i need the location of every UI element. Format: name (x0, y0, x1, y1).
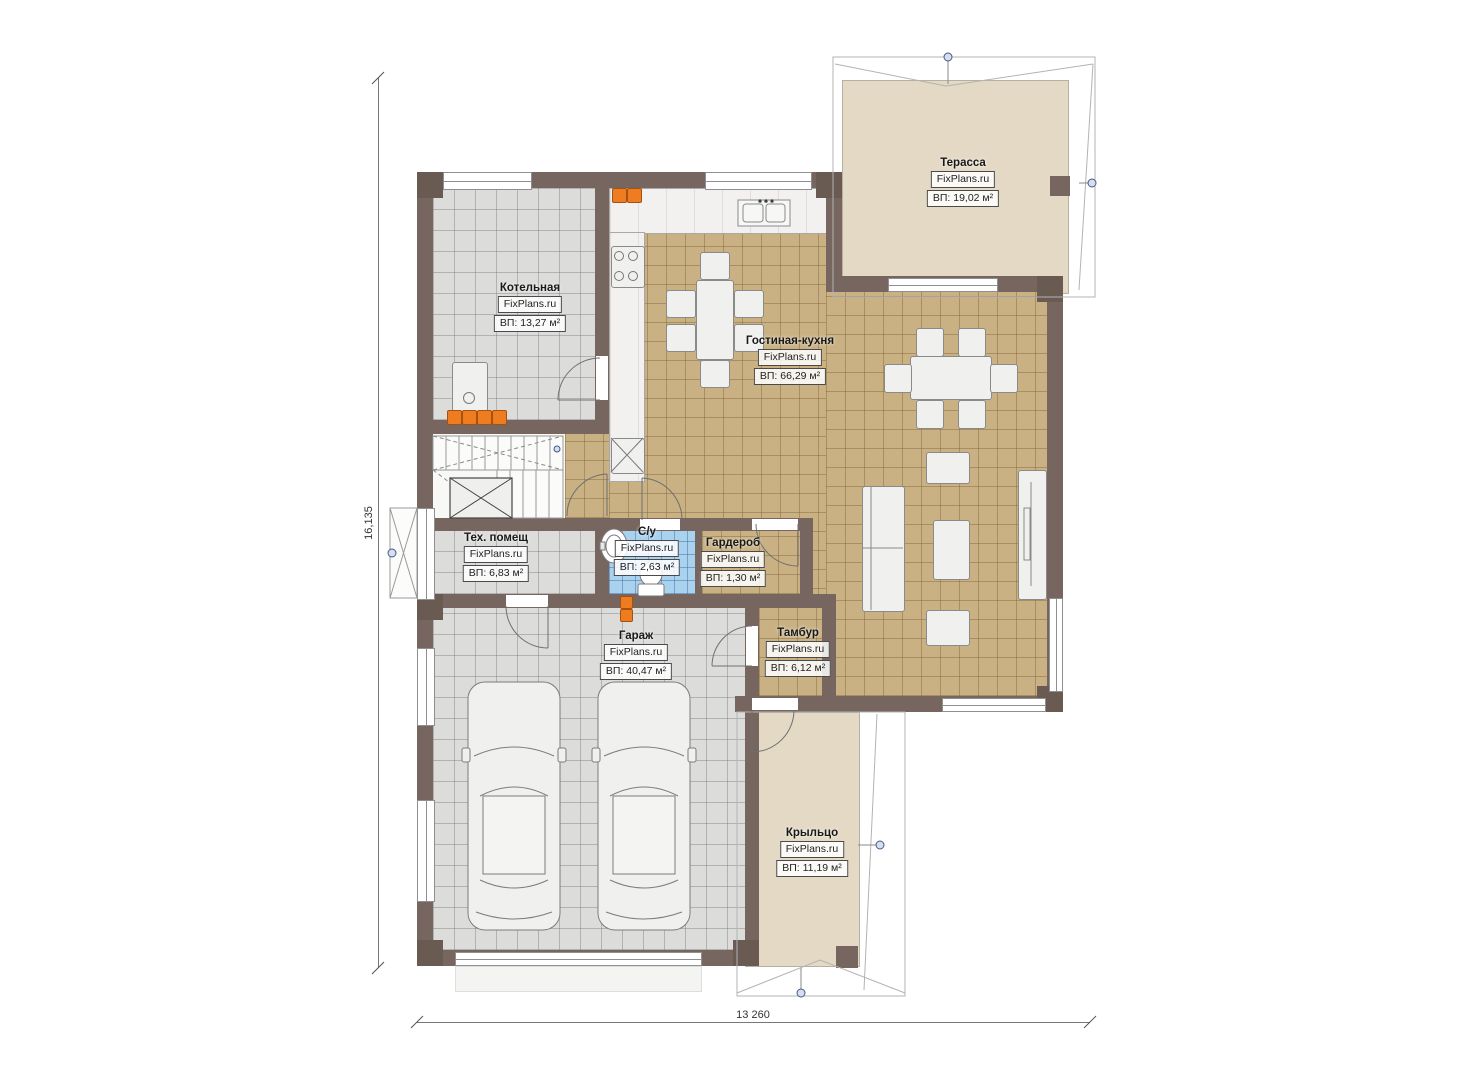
chair (884, 364, 912, 393)
chair (700, 360, 730, 388)
stove (611, 246, 645, 288)
room-label-living-kitchen: Гостиная-кухня FixPlans.ru ВП: 66,29 м² (746, 335, 834, 385)
armchair (926, 452, 970, 484)
room-name: Крыльцо (776, 827, 848, 839)
room-label-vestibule: Тамбур FixPlans.ru ВП: 6,12 м² (765, 627, 831, 677)
chair (916, 328, 944, 357)
room-area: ВП: 40,47 м² (600, 663, 672, 680)
corridor-floor (565, 434, 609, 518)
dimension-line-left (378, 78, 379, 968)
chair (916, 400, 944, 429)
garage-floor (433, 608, 745, 950)
room-area: ВП: 13,27 м² (494, 315, 566, 332)
room-label-wardrobe: Гардероб FixPlans.ru ВП: 1,30 м² (700, 537, 766, 587)
watermark: FixPlans.ru (758, 349, 823, 366)
radiator (620, 596, 633, 609)
chair (734, 290, 764, 318)
room-label-bathroom: С/у FixPlans.ru ВП: 2,63 м² (614, 526, 680, 576)
dimension-line-bottom (417, 1022, 1090, 1023)
terrace-column (1050, 176, 1070, 196)
radiator (447, 410, 462, 425)
armchair (926, 610, 970, 646)
door-opening-boiler (596, 356, 608, 400)
room-label-garage: Гараж FixPlans.ru ВП: 40,47 м² (600, 630, 672, 680)
radiator (462, 410, 477, 425)
bay-window-awning (390, 508, 417, 598)
radiator (477, 410, 492, 425)
coffee-table (933, 520, 970, 580)
watermark: FixPlans.ru (766, 641, 831, 658)
wall-corner (417, 172, 443, 198)
window-stair-bay-west (417, 508, 435, 600)
room-label-boiler: Котельная FixPlans.ru ВП: 13,27 м² (494, 282, 566, 332)
room-area: ВП: 2,63 м² (614, 559, 680, 576)
watermark: FixPlans.ru (701, 551, 766, 568)
room-label-terrace: Терасса FixPlans.ru ВП: 19,02 м² (927, 157, 999, 207)
chair (666, 324, 696, 352)
radiator (612, 188, 627, 203)
wall-tech-bath-divider (595, 518, 609, 594)
room-name: Тех. помещ (463, 532, 529, 544)
window-living-east (1049, 598, 1063, 692)
window-boiler-north (443, 172, 532, 190)
watermark: FixPlans.ru (464, 546, 529, 563)
room-label-porch: Крыльцо FixPlans.ru ВП: 11,19 м² (776, 827, 848, 877)
dining-table (910, 356, 992, 400)
room-name: Гардероб (700, 537, 766, 549)
boiler-unit (452, 362, 488, 412)
door-opening-wardrobe (752, 519, 798, 530)
wall-wardrobe-right (800, 518, 813, 594)
stair-hall-floor (433, 434, 565, 518)
room-label-tech: Тех. помещ FixPlans.ru ВП: 6,83 м² (463, 532, 529, 582)
chair (990, 364, 1018, 393)
radiator (627, 188, 642, 203)
watermark: FixPlans.ru (931, 171, 996, 188)
room-name: С/у (614, 526, 680, 538)
watermark: FixPlans.ru (604, 644, 669, 661)
room-area: ВП: 1,30 м² (700, 570, 766, 587)
room-name: Гостиная-кухня (746, 335, 834, 347)
room-area: ВП: 19,02 м² (927, 190, 999, 207)
dimension-height-label: 16,135 (363, 506, 375, 540)
wall-corner (733, 940, 759, 966)
window-living-south (942, 698, 1046, 712)
room-area: ВП: 6,83 м² (463, 565, 529, 582)
wall-corner (816, 172, 842, 198)
watermark: FixPlans.ru (498, 296, 563, 313)
wall-corner (1037, 276, 1063, 302)
terrace-sliding-door (888, 278, 998, 292)
room-name: Котельная (494, 282, 566, 294)
window-garage-west-1 (417, 648, 435, 726)
window-kitchen-north (705, 172, 812, 190)
room-area: ВП: 6,12 м² (765, 660, 831, 677)
chair (700, 252, 730, 280)
room-area: ВП: 11,19 м² (776, 860, 848, 877)
garage-gate (455, 952, 702, 966)
floor-plan: 16,135 13 260 Терасса FixPlans.ru ВП: 19… (0, 0, 1474, 1080)
room-name: Терасса (927, 157, 999, 169)
porch-column (836, 946, 858, 968)
radiator (492, 410, 507, 425)
room-area: ВП: 66,29 м² (754, 368, 826, 385)
sofa (862, 486, 905, 612)
door-opening-garage-vestibule (746, 626, 758, 666)
chair (958, 400, 986, 429)
chair (666, 290, 696, 318)
window-garage-west-2 (417, 800, 435, 902)
door-opening-entrance (752, 698, 798, 710)
kitchen-table (696, 280, 734, 360)
chair (958, 328, 986, 357)
kitchen-appliance (611, 438, 645, 474)
watermark: FixPlans.ru (615, 540, 680, 557)
radiator (620, 609, 633, 622)
wall-corner (417, 940, 443, 966)
room-name: Тамбур (765, 627, 831, 639)
watermark: FixPlans.ru (780, 841, 845, 858)
dimension-width-label: 13 260 (733, 1009, 773, 1021)
door-opening-garage-house (506, 595, 548, 607)
garage-driveway-apron (455, 966, 702, 992)
room-name: Гараж (600, 630, 672, 642)
tv-unit (1018, 470, 1047, 600)
